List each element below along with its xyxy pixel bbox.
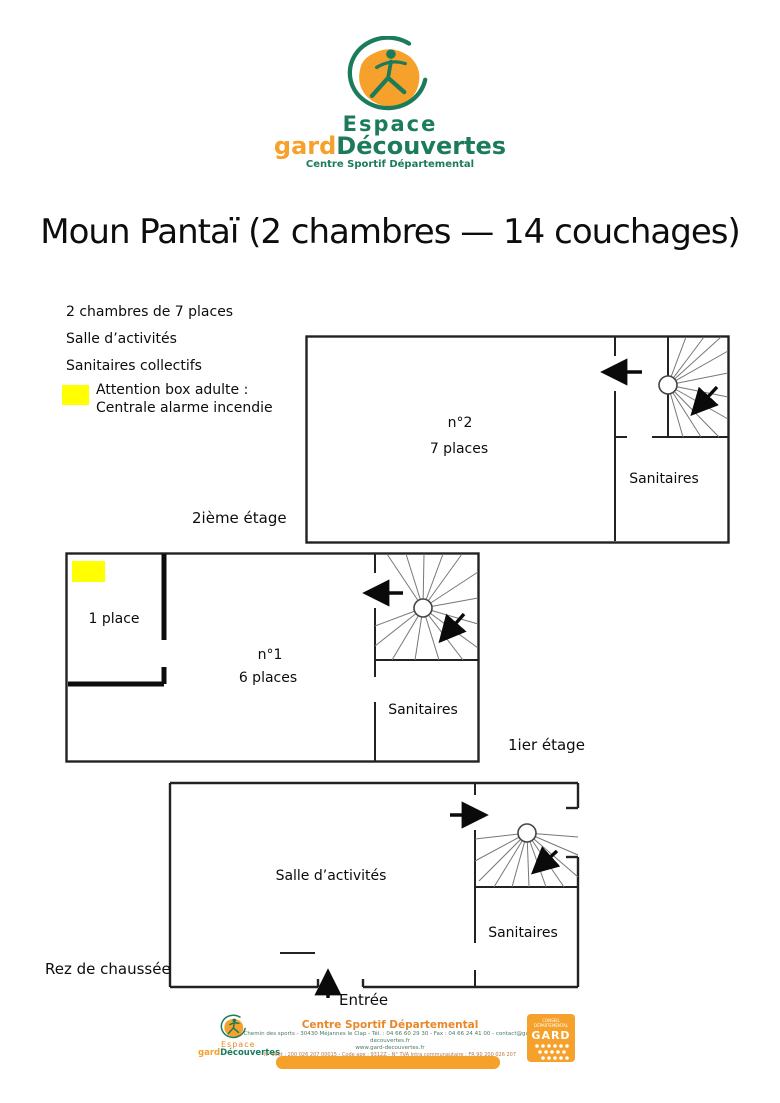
ground-name-label: Rez de chaussée [45,960,171,978]
footer-logo-gard-text: gard [198,1048,220,1058]
logo-decouvertes-text: Découvertes [336,132,506,160]
yellow-legend-swatch [62,385,89,405]
floor2-plan-drawing [305,335,730,547]
ground-sanitaires-label: Sanitaires [483,925,563,941]
footer-contact-block: Centre Sportif Départemental Chemin des … [240,1019,540,1059]
floor2-outer-walls [307,337,729,543]
ground-activity-room-label: Salle d’activités [271,868,391,884]
footer-center-title: Centre Sportif Départemental [240,1019,540,1031]
footer-orange-bar [276,1056,500,1069]
gard-logo-name-text: GARD [531,1029,570,1042]
floor1-single-room-label: 1 place [79,611,149,627]
logo-wordmark: gardDécouvertes [0,132,780,160]
floor1-stair-newel-icon [414,599,432,617]
document-page: Espace gardDécouvertes Centre Sportif Dé… [0,0,780,1103]
logo-gard-text: gard [274,132,336,160]
footer-website: www.gard-decouvertes.fr [240,1045,540,1052]
espace-gard-decouvertes-logo-icon [342,36,438,114]
info-item-salle: Salle d’activités [66,331,177,347]
info-item-chambres: 2 chambres de 7 places [66,304,233,320]
ground-stairs-arrow-icon [536,851,557,870]
floor1-capacity-label: 6 places [228,670,308,686]
floor2-interior-walls [615,337,728,541]
ground-outer-walls [170,783,578,987]
ground-plan-drawing [168,781,580,1011]
warning-line-2: Centrale alarme incendie [96,400,273,416]
floor2-stair-newel-icon [659,376,677,394]
page-title: Moun Pantaï (2 chambres — 14 couchages) [0,212,780,252]
logo-tagline: Centre Sportif Départemental [0,159,780,170]
floor1-alarm-box-highlight [72,561,105,582]
floor1-name-label: 1ier étage [508,736,585,754]
gard-department-logo: CONSEIL DÉPARTEMENTAL GARD [527,1014,575,1064]
floor2-sanitaires-label: Sanitaires [624,471,704,487]
footer-address-line: Chemin des sports - 30430 Méjannes le Cl… [240,1031,540,1045]
warning-line-1: Attention box adulte : [96,382,248,398]
floor2-room-label: n°2 [435,415,485,431]
floor2-name-label: 2ième étage [192,509,287,527]
entrance-label: Entrée [339,991,388,1009]
floor1-room-label: n°1 [245,647,295,663]
gard-logo-top-text-2: DÉPARTEMENTAL [534,1023,569,1028]
floor1-sanitaires-label: Sanitaires [383,702,463,718]
ground-interior-walls [280,783,578,987]
info-item-sanitaires: Sanitaires collectifs [66,358,202,374]
floor2-capacity-label: 7 places [419,441,499,457]
floor1-stairs-down-arrow-icon [443,614,464,638]
ground-stair-newel-icon [518,824,536,842]
floor1-interior-walls [375,554,478,762]
